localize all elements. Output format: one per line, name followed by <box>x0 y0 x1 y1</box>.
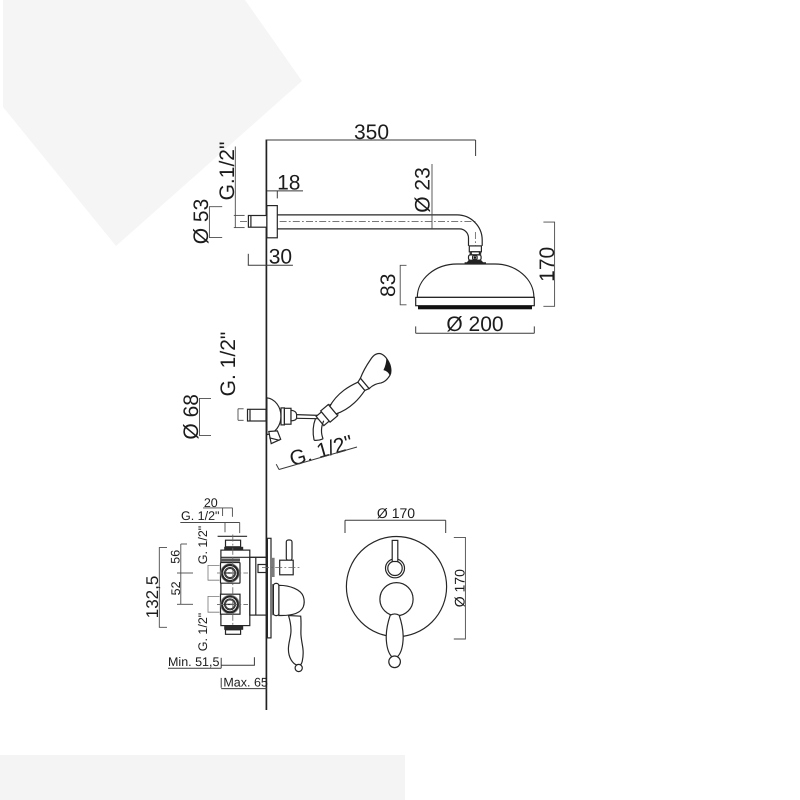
svg-text:30: 30 <box>269 246 292 269</box>
svg-text:Ø 53: Ø 53 <box>190 199 213 245</box>
svg-text:132,5: 132,5 <box>143 576 162 619</box>
svg-text:Ø 23: Ø 23 <box>412 167 435 213</box>
svg-text:Ø 170: Ø 170 <box>452 569 468 607</box>
svg-text:170: 170 <box>536 247 559 282</box>
svg-text:18: 18 <box>277 171 300 194</box>
svg-text:Max. 65: Max. 65 <box>223 676 268 690</box>
svg-text:G. 1/2": G. 1/2" <box>181 509 219 523</box>
svg-text:Ø 68: Ø 68 <box>180 394 203 440</box>
svg-text:52: 52 <box>169 581 183 595</box>
svg-text:Ø 200: Ø 200 <box>446 313 503 336</box>
svg-text:83: 83 <box>377 274 400 297</box>
svg-text:G. 1/2": G. 1/2" <box>196 613 210 651</box>
svg-text:Ø 170: Ø 170 <box>377 505 415 521</box>
svg-text:56: 56 <box>169 550 183 564</box>
svg-text:G. 1/2": G. 1/2" <box>196 526 210 564</box>
svg-text:G. 1/2": G. 1/2" <box>217 332 240 397</box>
svg-text:350: 350 <box>354 121 389 144</box>
svg-text:Min. 51,5: Min. 51,5 <box>168 655 219 669</box>
